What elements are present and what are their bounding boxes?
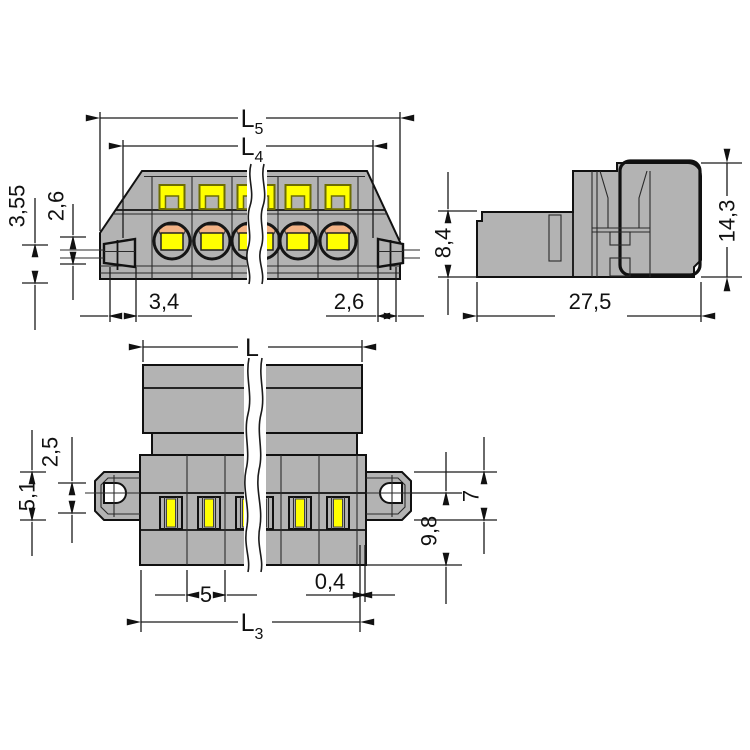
dim-2-6-left: 2,6 xyxy=(44,191,87,300)
dim-8-4: 8,4 xyxy=(431,172,478,315)
dim-84-label: 8,4 xyxy=(431,228,456,259)
dim-5: 5 xyxy=(155,570,257,607)
dim-98-label: 9,8 xyxy=(417,516,442,547)
dim-355-label: 3,55 xyxy=(5,185,30,228)
dim-27-5: 27,5 xyxy=(477,282,701,322)
dim-34-label: 3,4 xyxy=(149,289,180,314)
dim-14-3: 14,3 xyxy=(701,163,742,277)
connector-housing-side xyxy=(477,163,701,277)
dim-2-5: 2,5 xyxy=(38,437,87,543)
dim-26-bottom-label: 2,6 xyxy=(334,289,365,314)
dim-7-label: 7 xyxy=(459,490,484,502)
technical-drawing-page: L5 L4 3,55 2,6 3,4 xyxy=(0,0,750,750)
dim-pitch-label: 5 xyxy=(200,582,212,607)
dim-25-label: 2,5 xyxy=(38,437,63,468)
mounting-flange-left xyxy=(85,472,140,520)
side-view: 8,4 14,3 27,5 xyxy=(431,161,743,322)
mounting-flange-right xyxy=(366,472,411,520)
dim-26-left-label: 2,6 xyxy=(44,191,69,222)
dim-l-label: L xyxy=(245,334,259,362)
mounting-bracket-left xyxy=(60,239,135,270)
break-line-front xyxy=(247,164,267,284)
coding-slot xyxy=(160,497,258,529)
dim-51-label: 5,1 xyxy=(15,481,40,512)
dim-143-label: 14,3 xyxy=(715,200,740,243)
dim-275-label: 27,5 xyxy=(569,289,612,314)
dim-3-55: 3,55 xyxy=(5,185,49,330)
dim-l3-label: L3 xyxy=(241,609,264,643)
dim-L: L xyxy=(143,334,362,362)
dim-04-label: 0,4 xyxy=(315,569,346,594)
break-line-plan xyxy=(244,358,266,572)
connector-dimension-drawing: L5 L4 3,55 2,6 3,4 xyxy=(0,0,750,750)
coding-slots-left xyxy=(160,497,258,529)
plan-view: L 2,5 5,1 7 9,8 xyxy=(15,334,498,643)
front-view: L5 L4 3,55 2,6 3,4 xyxy=(5,105,425,330)
